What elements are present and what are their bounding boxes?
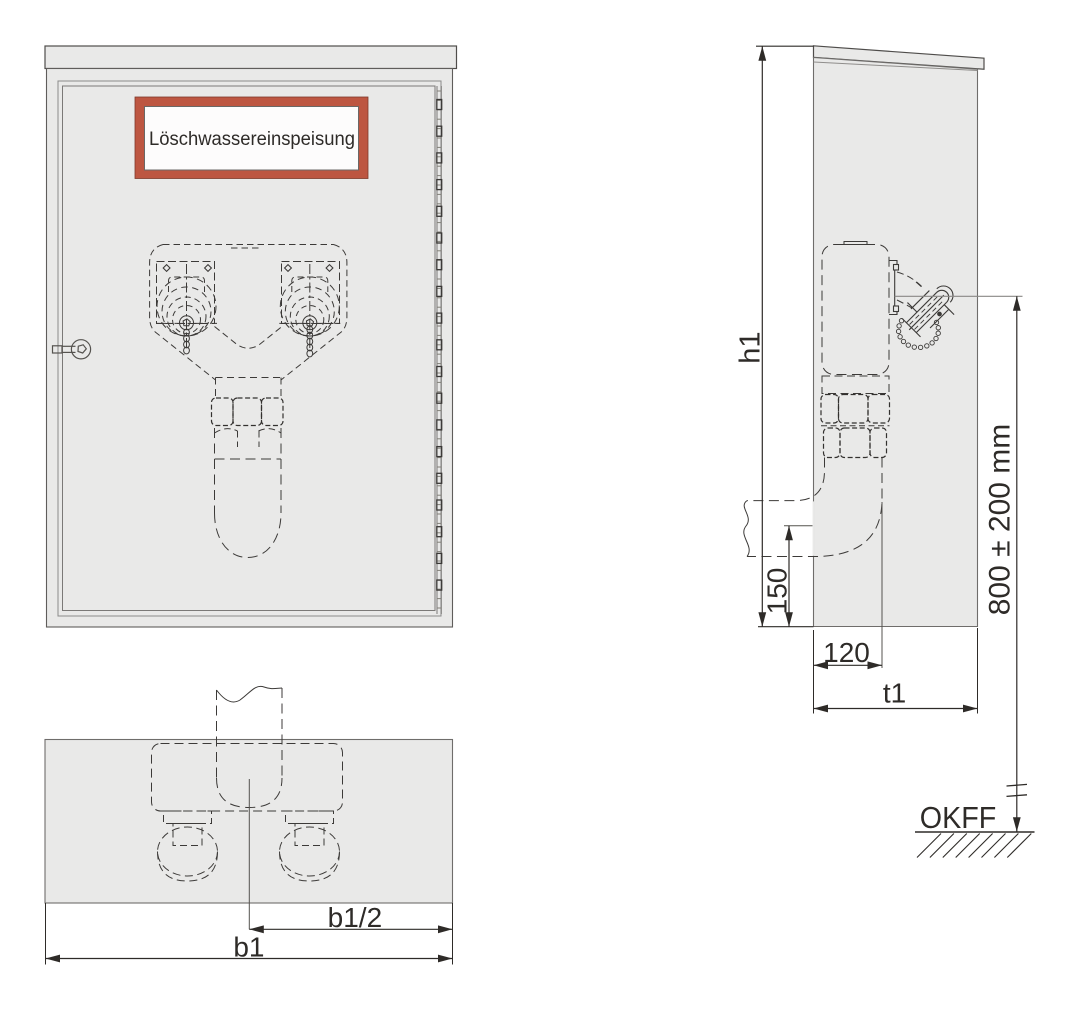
svg-text:h1: h1 bbox=[735, 331, 767, 363]
svg-text:OKFF: OKFF bbox=[920, 801, 997, 835]
svg-text:b1/2: b1/2 bbox=[328, 902, 383, 933]
svg-text:120: 120 bbox=[823, 637, 870, 668]
svg-text:800 ± 200 mm: 800 ± 200 mm bbox=[984, 424, 1017, 616]
svg-text:b1: b1 bbox=[233, 932, 264, 963]
svg-text:150: 150 bbox=[762, 568, 793, 615]
svg-text:Löschwassereinspeisung: Löschwassereinspeisung bbox=[149, 129, 355, 150]
svg-text:t1: t1 bbox=[883, 678, 906, 709]
